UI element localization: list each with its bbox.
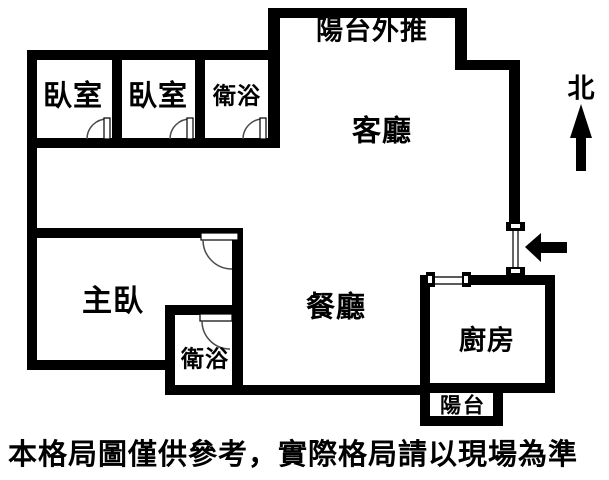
room-label-bedroom2: 臥室 (128, 82, 188, 111)
door-arc (203, 240, 232, 269)
door-cap-inner (511, 224, 520, 228)
door-leaf (200, 314, 232, 321)
disclaimer-text: 本格局圖僅供參考，實際格局請以現場為準 (8, 440, 578, 469)
compass-north-label: 北 (568, 76, 595, 103)
door-cap-inner (511, 269, 520, 273)
window-symbol (433, 277, 465, 284)
room-label-master-bedroom: 主臥 (82, 287, 144, 317)
door-leaf (187, 118, 193, 139)
window-cap-inner (464, 276, 468, 283)
room-label-kitchen: 廚房 (459, 328, 515, 355)
north-arrow-icon (570, 104, 592, 171)
window-cap-inner (428, 276, 432, 283)
plan-symbols (0, 0, 609, 480)
door-leaf (260, 118, 266, 139)
room-label-bathroom2: 衛浴 (181, 349, 229, 372)
entrance-arrow-icon (525, 233, 567, 262)
room-label-balcony: 陽台 (440, 396, 486, 417)
room-label-balcony-pushed-out: 陽台外推 (316, 18, 428, 45)
room-label-bathroom1: 衛浴 (213, 86, 261, 109)
room-label-bedroom1: 臥室 (43, 82, 103, 111)
door-leaf (201, 233, 238, 240)
door-arc (202, 321, 230, 349)
floor-plan: 臥室 臥室 衛浴 陽台外推 客廳 主臥 餐廳 衛浴 廚房 陽台 北 本格局圖僅供… (0, 0, 609, 480)
room-label-living-room: 客廳 (352, 117, 412, 146)
room-label-dining-room: 餐廳 (306, 293, 366, 322)
door-leaf (104, 118, 110, 139)
entrance-door (513, 229, 518, 270)
